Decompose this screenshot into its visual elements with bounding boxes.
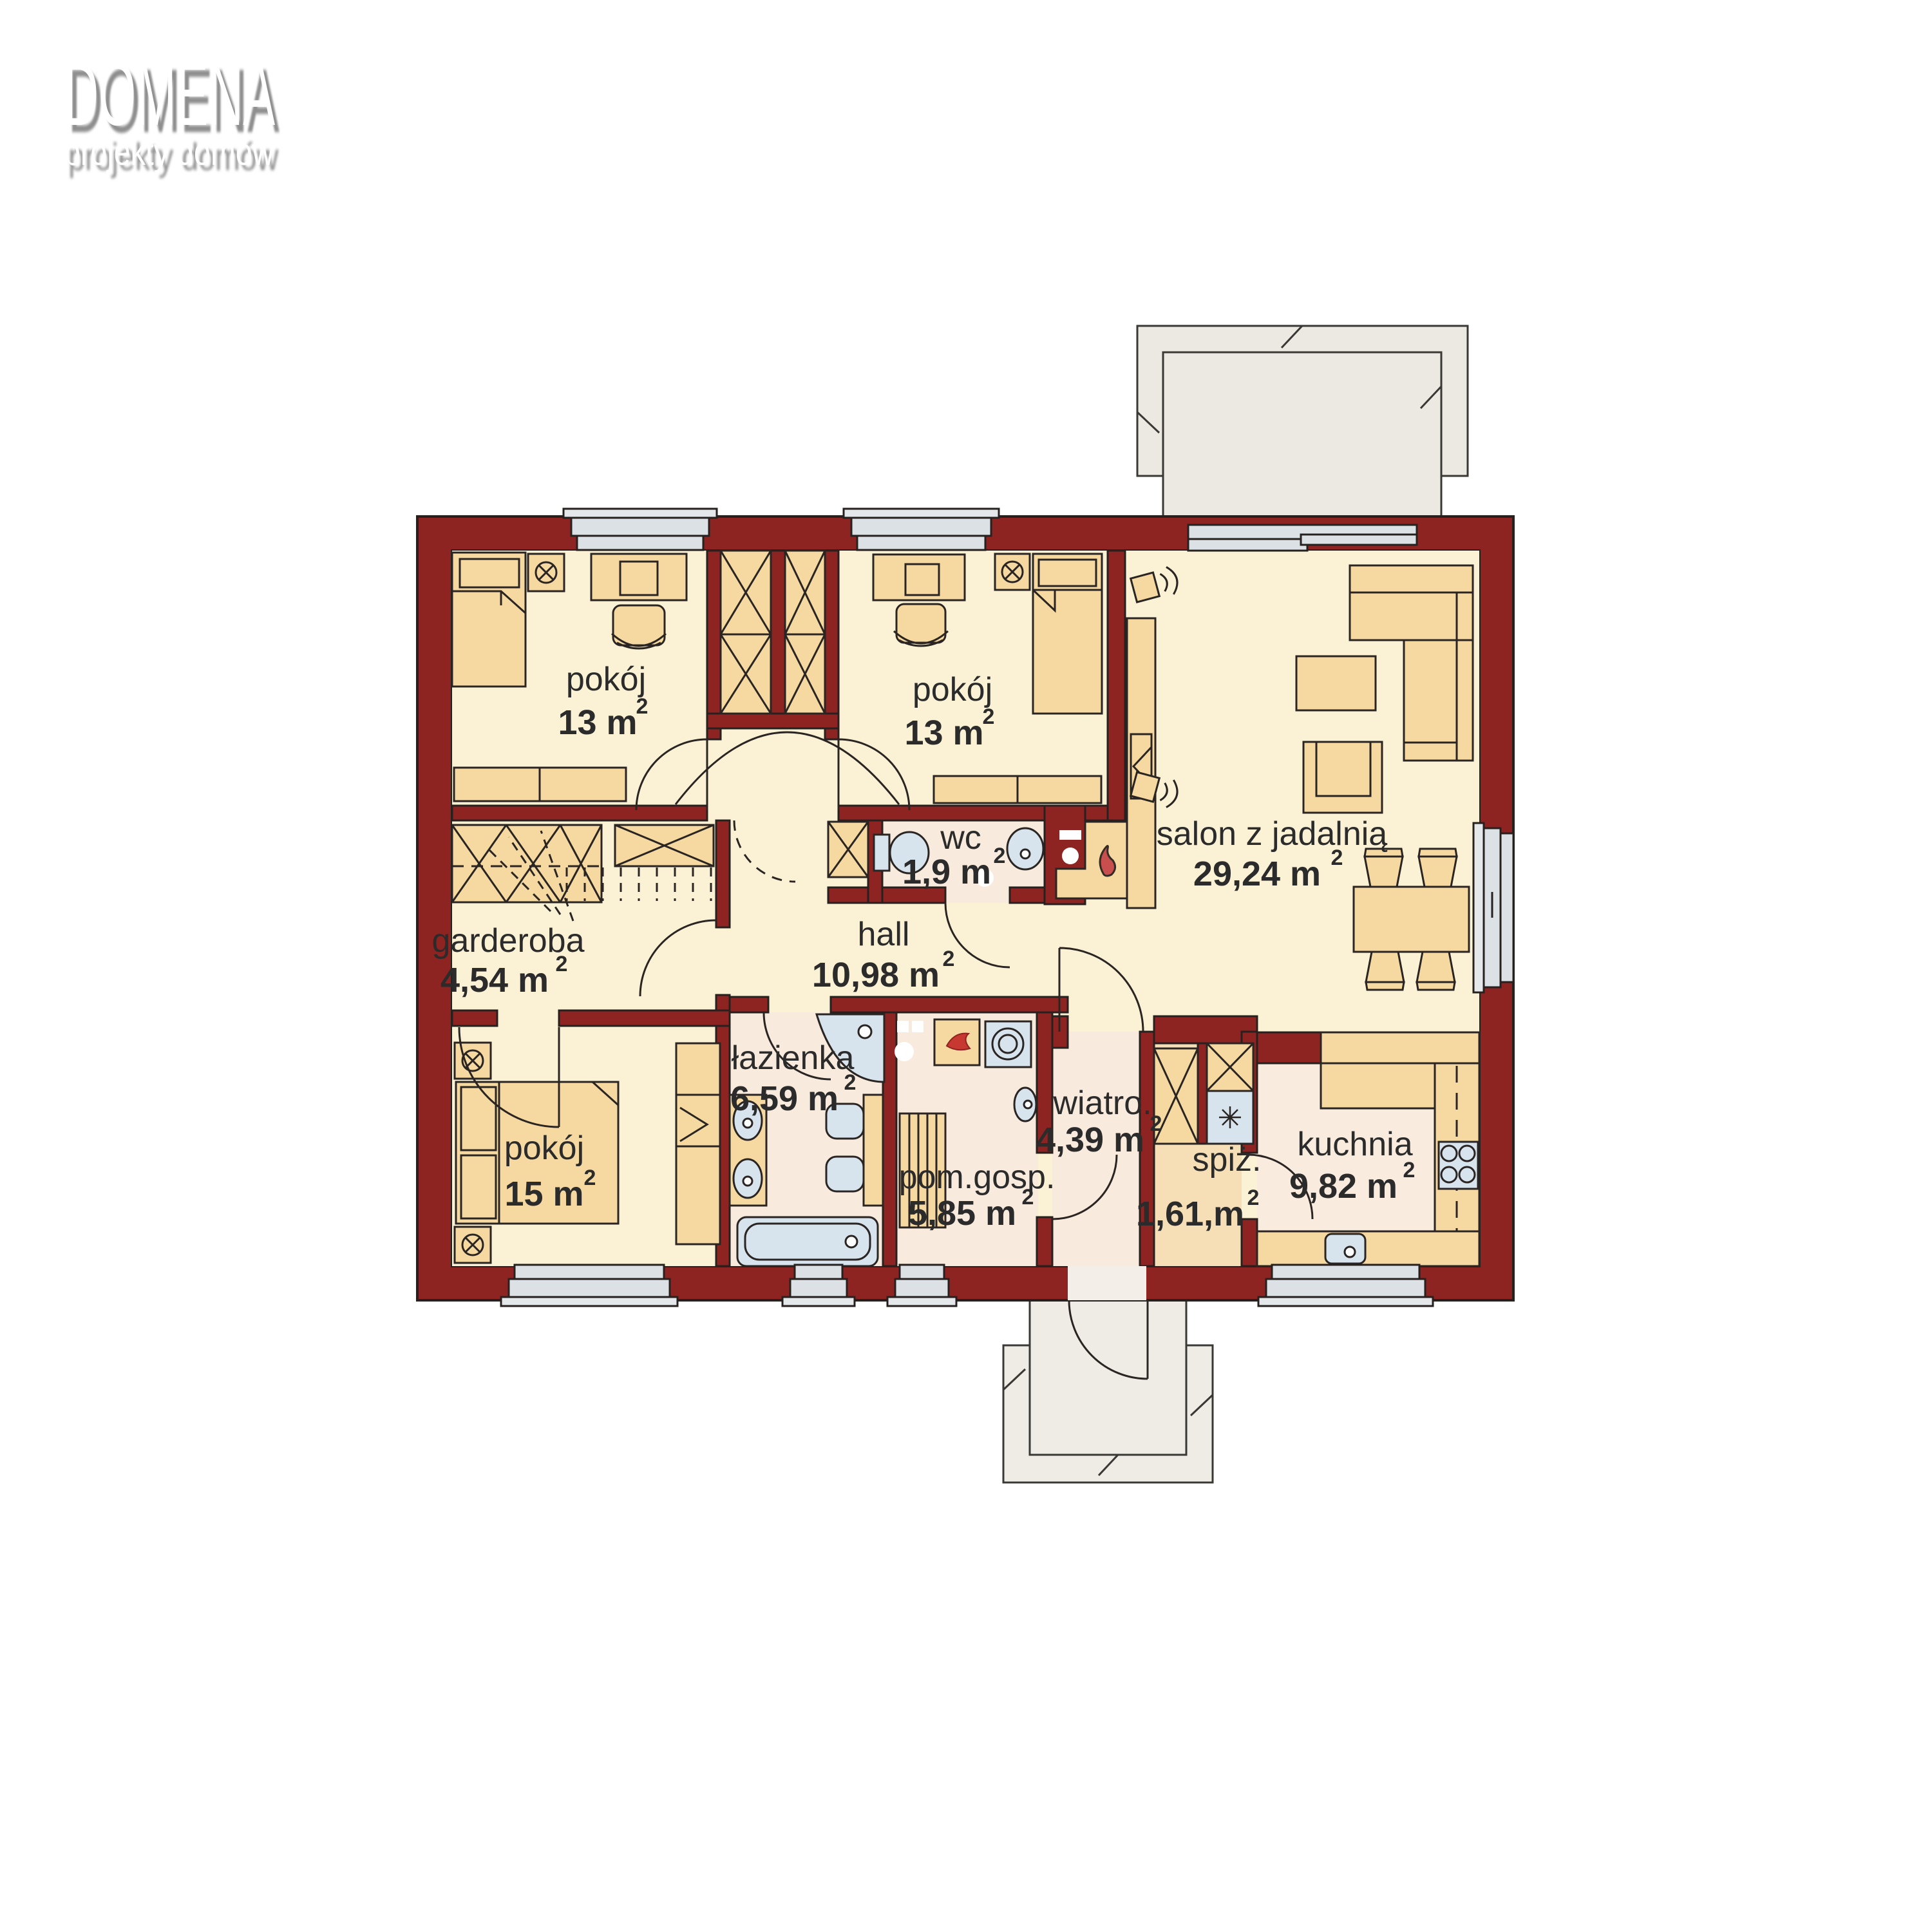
svg-text:kuchnia: kuchnia <box>1297 1126 1412 1163</box>
svg-text:2: 2 <box>1331 846 1343 870</box>
svg-text:2: 2 <box>943 947 955 971</box>
svg-text:4,54 m: 4,54 m <box>440 961 549 999</box>
svg-text:wc: wc <box>940 819 981 857</box>
svg-text:pokój: pokój <box>566 661 646 698</box>
svg-text:1,9 m: 1,9 m <box>902 853 991 891</box>
svg-text:9,82 m: 9,82 m <box>1289 1167 1397 1206</box>
svg-text:2: 2 <box>636 694 649 719</box>
svg-text:2: 2 <box>1150 1112 1162 1136</box>
svg-text:wiatro.: wiatro. <box>1052 1084 1151 1122</box>
svg-text:29,24 m: 29,24 m <box>1193 855 1321 893</box>
svg-text:2: 2 <box>994 844 1006 868</box>
svg-text:salon z jadalnią: salon z jadalnią <box>1157 815 1388 853</box>
svg-text:spiż.: spiż. <box>1193 1141 1262 1179</box>
svg-text:5,85 m: 5,85 m <box>908 1194 1016 1233</box>
svg-text:13 m: 13 m <box>558 703 637 742</box>
svg-text:15 m: 15 m <box>504 1175 583 1213</box>
svg-text:łazienka: łazienka <box>732 1039 855 1077</box>
svg-text:2: 2 <box>1403 1158 1416 1182</box>
svg-text:6,59 m: 6,59 m <box>730 1079 838 1118</box>
svg-text:2: 2 <box>1022 1185 1034 1209</box>
svg-text:10,98 m: 10,98 m <box>812 956 940 994</box>
svg-text:2: 2 <box>584 1166 596 1190</box>
svg-text:2: 2 <box>1247 1186 1260 1210</box>
svg-text:1,61,m: 1,61,m <box>1136 1195 1244 1233</box>
svg-text:projekty domów: projekty domów <box>64 131 274 173</box>
svg-text:hall: hall <box>858 916 910 953</box>
svg-text:2: 2 <box>556 952 568 976</box>
svg-text:pokój: pokój <box>504 1130 584 1167</box>
svg-text:13 m: 13 m <box>904 714 983 752</box>
svg-text:pokój: pokój <box>913 671 992 708</box>
svg-text:DOMENA: DOMENA <box>64 43 275 144</box>
svg-text:4,39 m: 4,39 m <box>1036 1121 1144 1159</box>
svg-text:2: 2 <box>983 705 995 729</box>
svg-text:2: 2 <box>844 1070 857 1095</box>
